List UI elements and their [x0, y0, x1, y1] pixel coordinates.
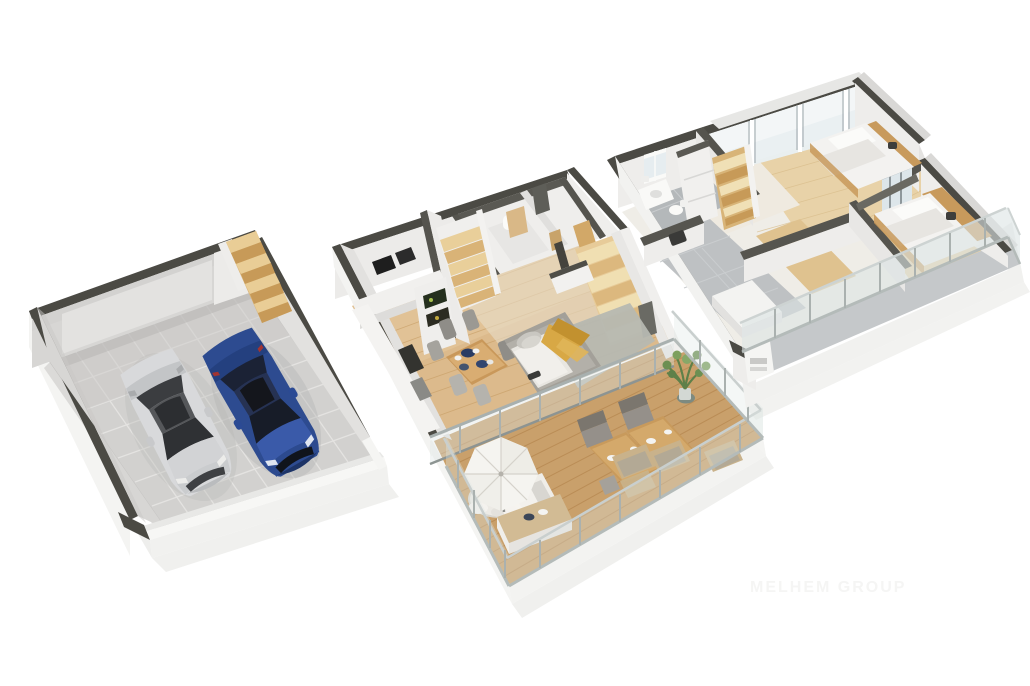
svg-text:MELHEM GROUP: MELHEM GROUP [750, 579, 906, 596]
